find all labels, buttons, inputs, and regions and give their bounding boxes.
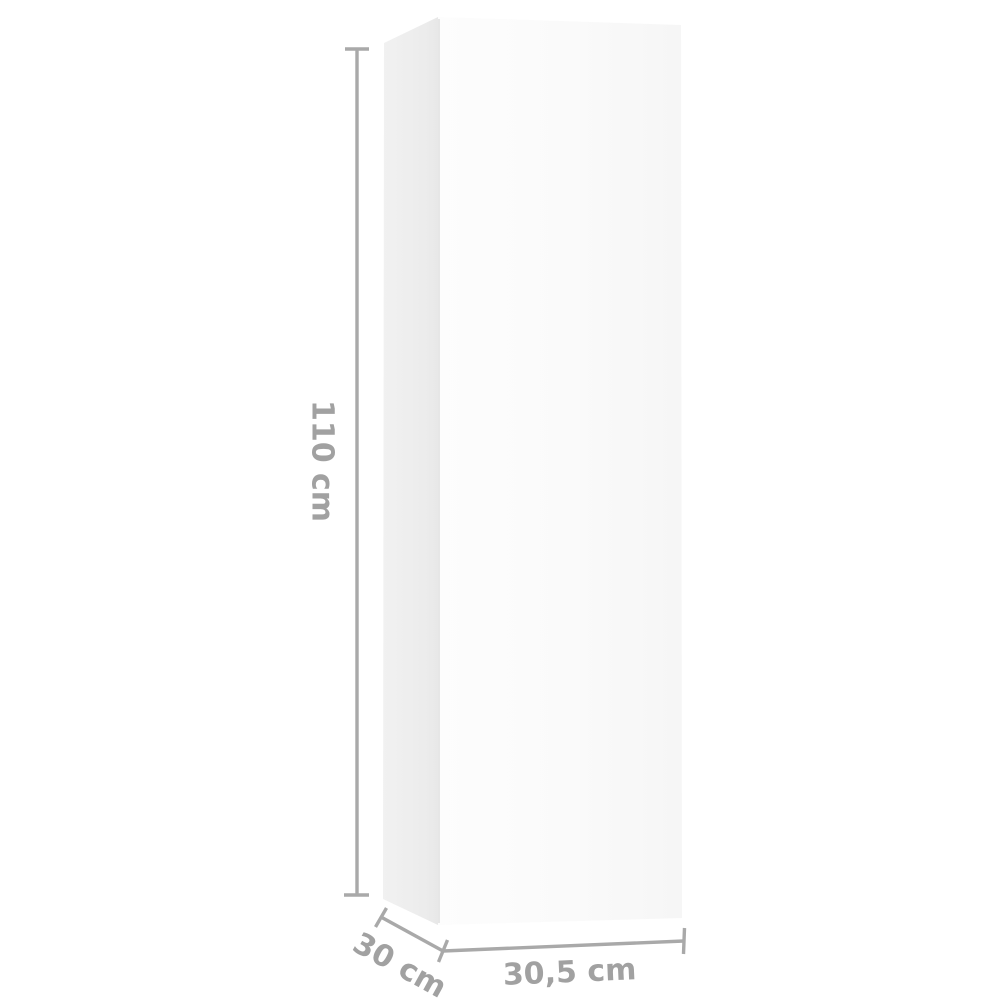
width-dimension-label: 30,5 cm bbox=[502, 952, 637, 993]
dimension-diagram-canvas: 110 cm 30 cm 30,5 cm bbox=[0, 0, 1000, 1000]
width-dimension-right-cap bbox=[684, 928, 685, 954]
height-dimension-label: 110 cm bbox=[305, 400, 340, 522]
cabinet-side-face bbox=[383, 17, 438, 925]
cabinet bbox=[383, 17, 682, 925]
product-dimension-image: 110 cm 30 cm 30,5 cm bbox=[0, 0, 1000, 1000]
cabinet-front-face bbox=[438, 17, 682, 925]
